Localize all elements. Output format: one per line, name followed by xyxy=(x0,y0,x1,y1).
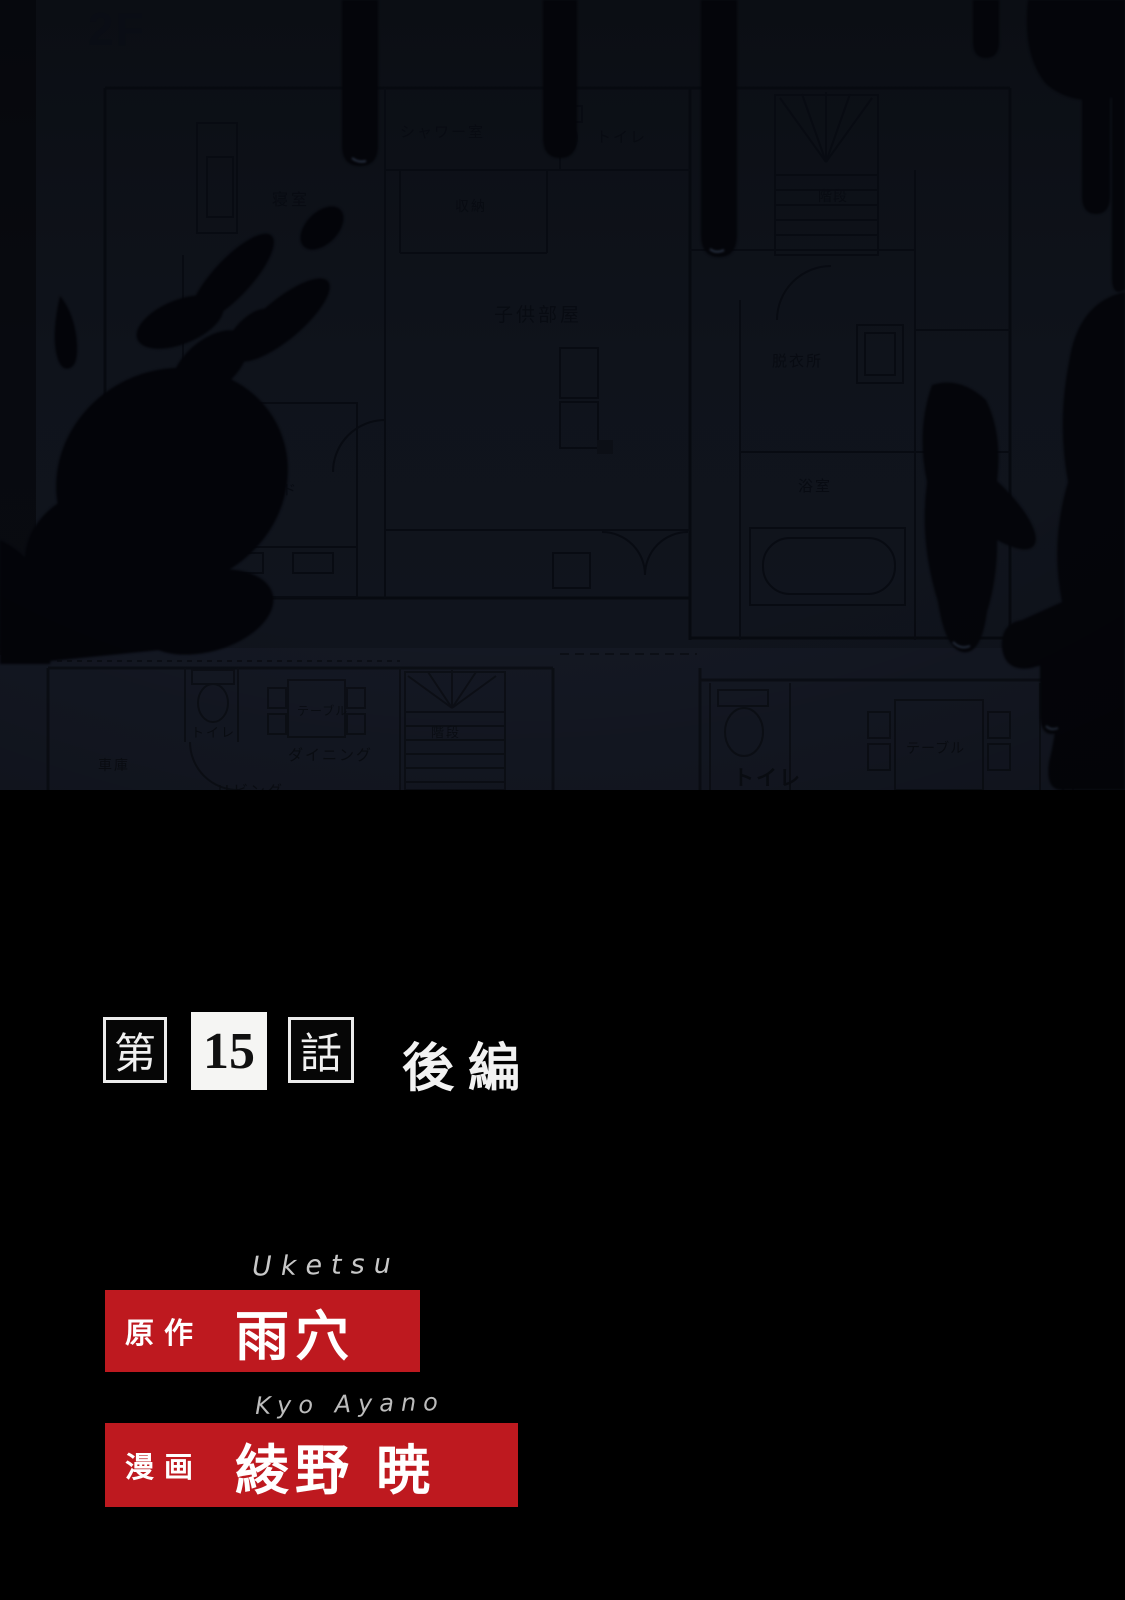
part-label: 後編 xyxy=(402,1026,534,1101)
manga-title-page: 2F シャワー室 トイレ 収納 寝室 子供部屋 階段 脱衣所 浴室 ベッド バル… xyxy=(0,0,1125,1600)
author-name: 雨穴 xyxy=(235,1292,355,1371)
chapter-suffix: 話 xyxy=(300,1020,342,1081)
chapter-prefix: 第 xyxy=(114,1020,156,1081)
chapter-number-box: 15 xyxy=(191,1012,267,1090)
handprint-silhouette xyxy=(0,198,352,668)
author-credit-box: 原作 雨穴 xyxy=(105,1290,420,1372)
artist-credit-box: 漫画 綾野 暁 xyxy=(105,1423,518,1507)
chapter-prefix-box: 第 xyxy=(103,1017,167,1083)
blood-mass-right xyxy=(910,292,1125,790)
floorplan-scene: 2F シャワー室 トイレ 収納 寝室 子供部屋 階段 脱衣所 浴室 ベッド バル… xyxy=(0,0,1125,790)
blood-drips-top xyxy=(342,0,1125,292)
chapter-number: 15 xyxy=(203,1022,255,1081)
author-romaji: Uketsu xyxy=(252,1248,400,1282)
artist-romaji: Kyo Ayano xyxy=(255,1388,445,1420)
artist-name: 綾野 暁 xyxy=(235,1426,436,1505)
blood-overlay xyxy=(0,0,1125,790)
chapter-suffix-box: 話 xyxy=(288,1017,354,1083)
author-role: 原作 xyxy=(125,1310,203,1352)
artist-role: 漫画 xyxy=(125,1444,203,1486)
